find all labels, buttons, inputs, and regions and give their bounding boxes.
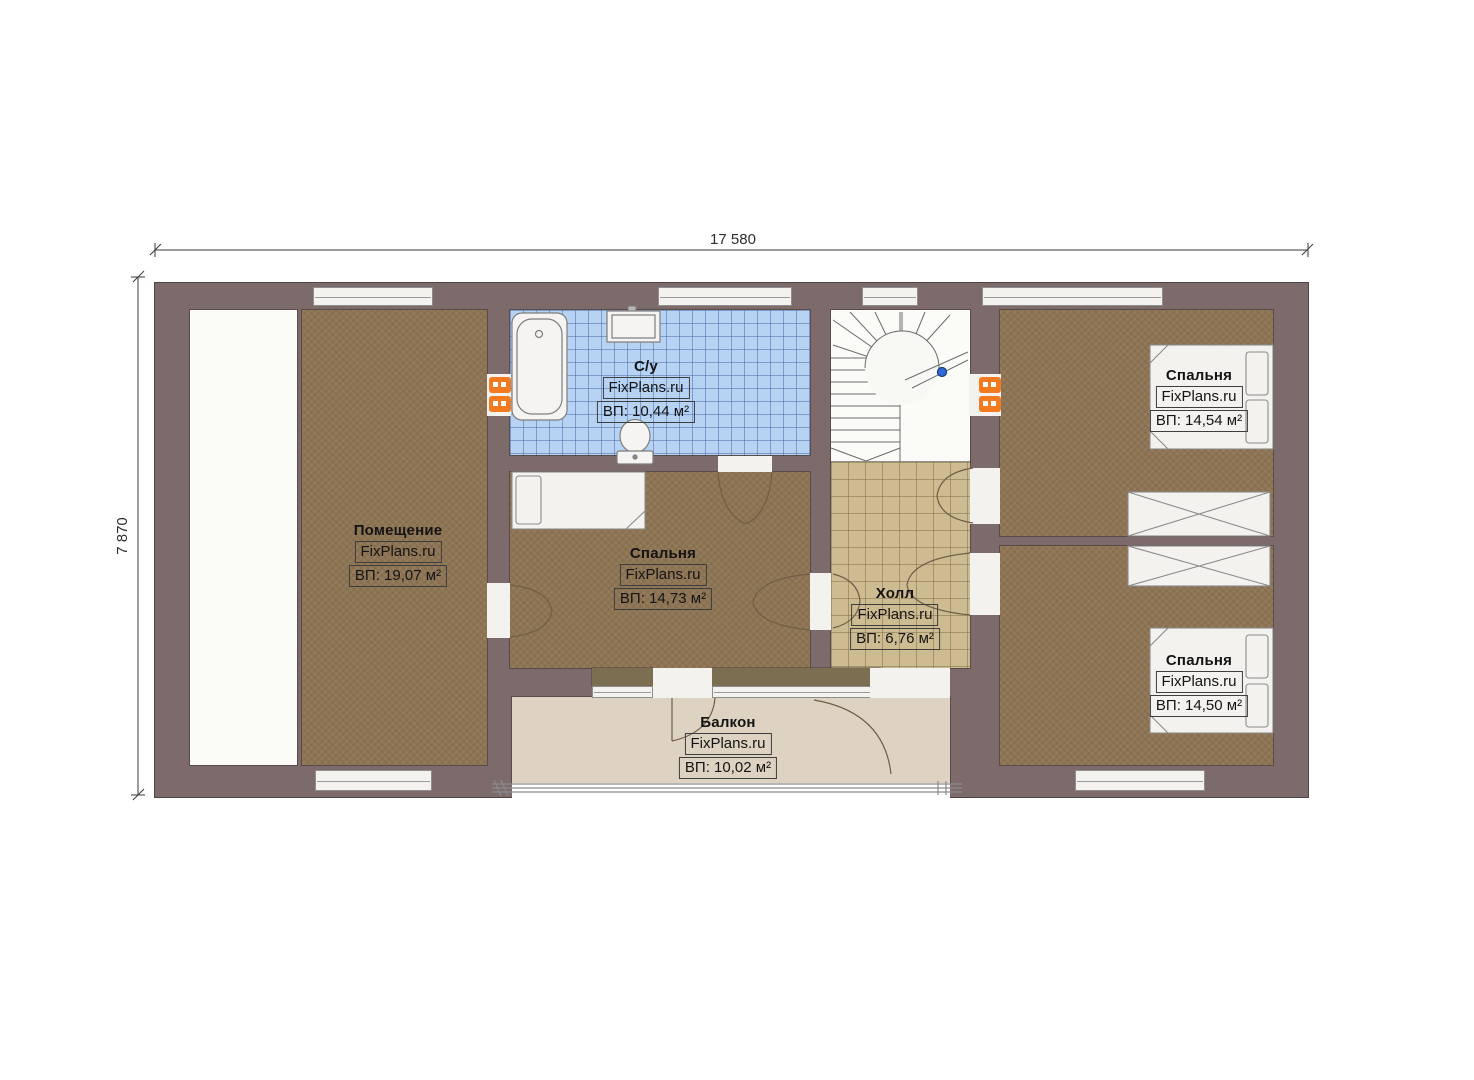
label-bedroom-top-right: Спальня FixPlans.ru ВП: 14,54 м² bbox=[1150, 367, 1248, 432]
radiator-niche-right bbox=[969, 374, 1001, 416]
dimension-left bbox=[131, 271, 145, 800]
bedroom-middle-brand: FixPlans.ru bbox=[619, 564, 706, 586]
bathroom-name: С/у bbox=[634, 358, 658, 375]
door-opening-hall-bedroom-br bbox=[970, 553, 1000, 615]
window-bottom-1 bbox=[315, 770, 432, 791]
hall-brand: FixPlans.ru bbox=[851, 604, 938, 626]
label-bathroom: С/у FixPlans.ru ВП: 10,44 м² bbox=[597, 358, 695, 423]
door-opening-room-bedroom bbox=[487, 583, 510, 638]
balcony-door-opening bbox=[653, 668, 712, 698]
balcony-brand: FixPlans.ru bbox=[684, 733, 771, 755]
label-bedroom-middle: Спальня FixPlans.ru ВП: 14,73 м² bbox=[614, 545, 712, 610]
bathroom-brand: FixPlans.ru bbox=[602, 377, 689, 399]
bedroom-top-right-brand: FixPlans.ru bbox=[1155, 386, 1242, 408]
window-bottom-2 bbox=[1075, 770, 1205, 791]
room-brand: FixPlans.ru bbox=[354, 541, 441, 563]
hall-area: ВП: 6,76 м² bbox=[850, 628, 940, 650]
label-room: Помещение FixPlans.ru ВП: 19,07 м² bbox=[349, 522, 447, 587]
bedroom-bottom-right-name: Спальня bbox=[1166, 652, 1232, 669]
floor-plan-canvas: 17 580 7 870 bbox=[0, 0, 1474, 1080]
bathroom-area: ВП: 10,44 м² bbox=[597, 401, 695, 423]
balcony-name: Балкон bbox=[700, 714, 755, 731]
bedroom-bottom-right-brand: FixPlans.ru bbox=[1155, 671, 1242, 693]
radiator-niche-left bbox=[487, 374, 511, 416]
balcony-sill-left bbox=[592, 668, 653, 686]
bedroom-middle-name: Спальня bbox=[630, 545, 696, 562]
dimension-top bbox=[150, 243, 1313, 257]
door-opening-bathroom bbox=[718, 456, 772, 472]
label-hall: Холл FixPlans.ru ВП: 6,76 м² bbox=[850, 585, 940, 650]
door-opening-bedroom-hall bbox=[810, 573, 831, 630]
bedroom-top-right-area: ВП: 14,54 м² bbox=[1150, 410, 1248, 432]
hall-name: Холл bbox=[876, 585, 914, 602]
label-bedroom-bottom-right: Спальня FixPlans.ru ВП: 14,50 м² bbox=[1150, 652, 1248, 717]
window-top-1 bbox=[313, 287, 433, 306]
balcony-area: ВП: 10,02 м² bbox=[679, 757, 777, 779]
balcony-edge-clear bbox=[512, 783, 950, 798]
stairwell-floor bbox=[831, 310, 970, 462]
void-room-floor bbox=[190, 310, 297, 765]
balcony-glazing-right bbox=[712, 686, 880, 698]
window-top-2 bbox=[658, 287, 792, 306]
balcony-glazing-left bbox=[592, 686, 653, 698]
window-top-4 bbox=[982, 287, 1163, 306]
dimension-width-label: 17 580 bbox=[710, 231, 756, 248]
bedroom-bottom-right-area: ВП: 14,50 м² bbox=[1150, 695, 1248, 717]
label-balcony: Балкон FixPlans.ru ВП: 10,02 м² bbox=[679, 714, 777, 779]
window-top-3 bbox=[862, 287, 918, 306]
room-area: ВП: 19,07 м² bbox=[349, 565, 447, 587]
dimension-height-label: 7 870 bbox=[114, 517, 131, 555]
hall-balcony-opening bbox=[870, 668, 950, 698]
bedroom-middle-area: ВП: 14,73 м² bbox=[614, 588, 712, 610]
room-name: Помещение bbox=[354, 522, 443, 539]
door-opening-hall-bedroom-tr bbox=[970, 468, 1000, 524]
balcony-sill-right bbox=[712, 668, 880, 686]
bedroom-top-right-name: Спальня bbox=[1166, 367, 1232, 384]
